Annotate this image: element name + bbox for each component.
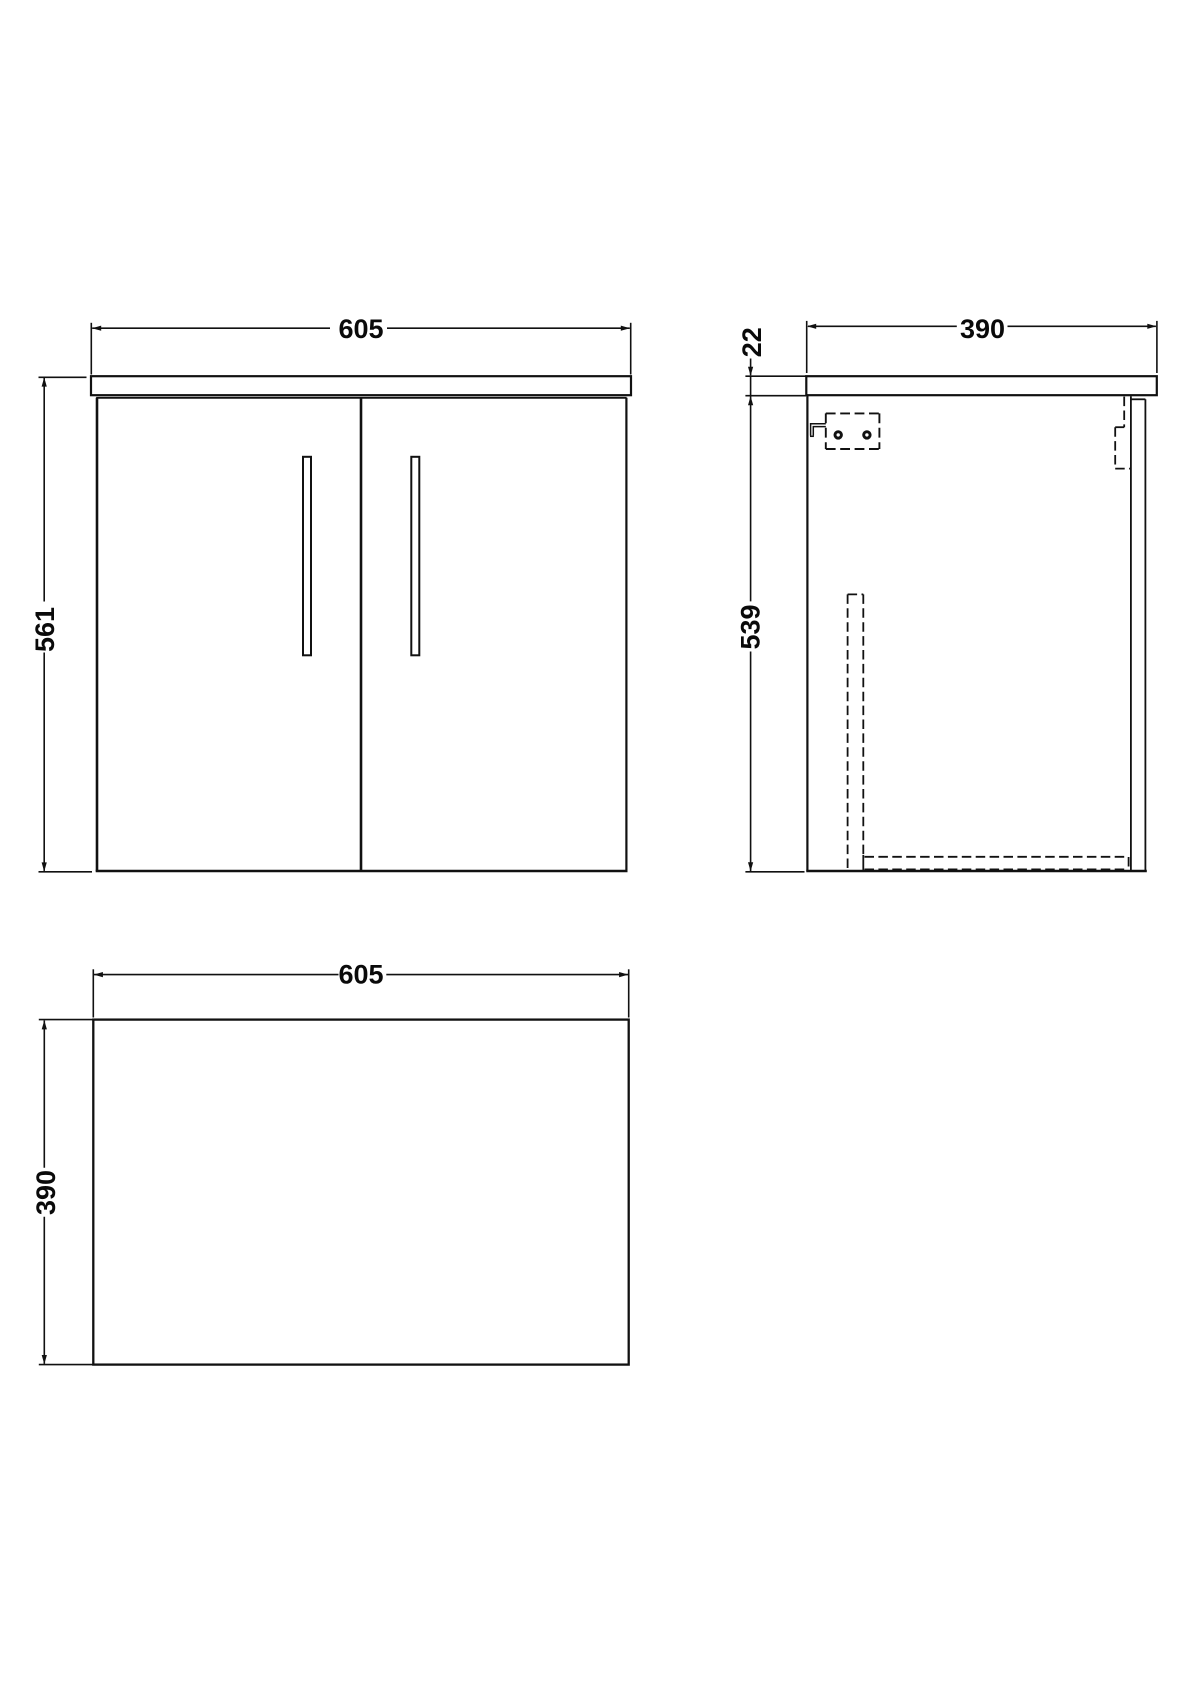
svg-text:561: 561 [30, 607, 60, 652]
svg-text:22: 22 [737, 327, 767, 357]
svg-text:390: 390 [31, 1170, 61, 1215]
svg-text:539: 539 [736, 604, 766, 649]
svg-text:390: 390 [960, 314, 1005, 344]
svg-text:605: 605 [338, 314, 383, 344]
svg-text:605: 605 [338, 960, 383, 990]
